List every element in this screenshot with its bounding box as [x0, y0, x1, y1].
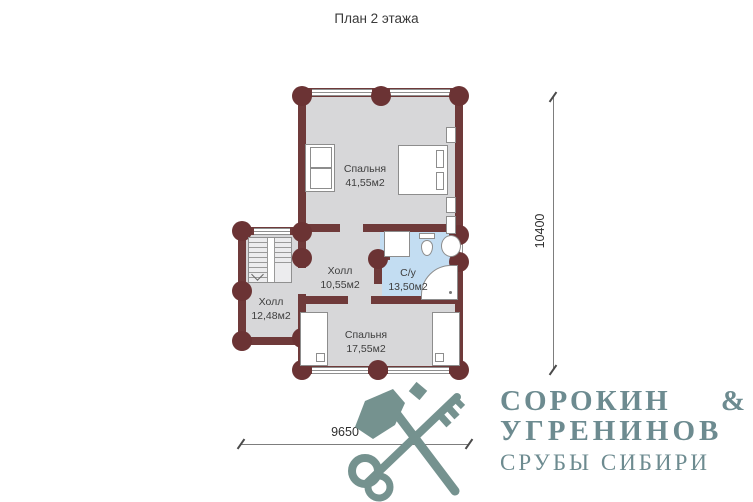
- cabinet-icon: [446, 216, 456, 234]
- room-name: Холл: [328, 265, 353, 277]
- stair-flight: [275, 238, 291, 264]
- toilet-tank-icon: [419, 233, 435, 239]
- bed-icon: [432, 312, 460, 366]
- sink-icon: [441, 235, 461, 257]
- room-label-hall-main: Холл 10,55м2: [300, 264, 380, 292]
- logo-name-line-2: УГРЕНИНОВ: [500, 416, 748, 446]
- pillow-icon: [436, 150, 444, 168]
- window: [254, 228, 290, 235]
- stair-landing: [267, 238, 275, 282]
- wall: [302, 224, 459, 232]
- log-post: [368, 360, 388, 380]
- dimension-tick: [549, 365, 558, 376]
- log-post: [232, 331, 252, 351]
- door-opening: [340, 224, 363, 232]
- shower-drain-icon: [449, 291, 452, 294]
- logo-ampersand: &: [721, 386, 748, 416]
- room-name: Спальня: [345, 329, 387, 341]
- room-area: 17,55м2: [346, 343, 385, 355]
- floor-plan-page: План 2 этажа: [0, 0, 753, 502]
- closet-icon: [384, 231, 410, 257]
- window: [390, 89, 450, 96]
- nightstand-icon: [446, 127, 456, 143]
- room-area: 12,48м2: [251, 310, 290, 322]
- room-label-hall-annex: Холл 12,48м2: [243, 295, 299, 323]
- room-name: Спальня: [344, 163, 386, 175]
- room-label-bedroom-1: Спальня 41,55м2: [315, 162, 415, 190]
- window: [312, 367, 368, 374]
- room-area: 13,50м2: [388, 281, 427, 293]
- logo-name-part: СОРОКИН: [500, 386, 671, 416]
- dimension-line-vertical: [553, 97, 554, 370]
- page-title: План 2 этажа: [0, 11, 753, 26]
- room-area: 10,55м2: [320, 279, 359, 291]
- logo-icon: [345, 383, 480, 502]
- logo-tagline: СРУБЫ СИБИРИ: [500, 449, 748, 477]
- room-area: 41,55м2: [345, 177, 384, 189]
- room-label-bedroom-2: Спальня 17,55м2: [316, 328, 416, 356]
- door-opening: [348, 296, 371, 304]
- room-name: Холл: [259, 296, 284, 308]
- pillow-icon: [435, 353, 444, 362]
- staircase-icon: [248, 237, 292, 283]
- room-label-bathroom: С/у 13,50м2: [372, 266, 444, 294]
- log-post: [449, 86, 469, 106]
- logo-text-block: СОРОКИН & УГРЕНИНОВ СРУБЫ СИБИРИ: [500, 386, 748, 476]
- log-post: [292, 222, 312, 242]
- nightstand-icon: [446, 197, 456, 213]
- window: [312, 89, 372, 96]
- pillow-icon: [436, 172, 444, 190]
- dimension-label-height: 10400: [533, 201, 547, 261]
- room-name: С/у: [400, 267, 416, 279]
- logo-name-line-1: СОРОКИН &: [500, 386, 748, 416]
- log-post: [292, 86, 312, 106]
- window: [388, 367, 449, 374]
- log-post: [371, 86, 391, 106]
